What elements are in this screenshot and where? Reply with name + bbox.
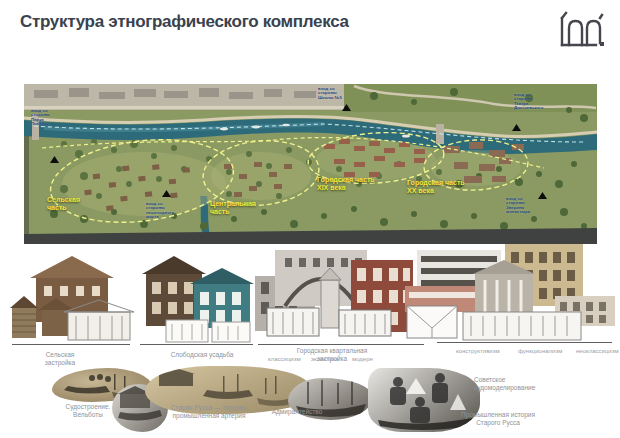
caption-admiralty: Адмиралтейство xyxy=(262,408,332,416)
zone-label-xx: Городская часть XX века xyxy=(407,179,469,196)
style-label-constructivism: конструктивизм xyxy=(456,348,500,354)
caption-ship-modelling: Советское судомоделирование xyxy=(474,376,548,392)
slide: Структура этнографического комплекса xyxy=(0,0,620,438)
ground-line xyxy=(140,344,253,345)
ground-line xyxy=(12,344,130,345)
urban-quarter-collage xyxy=(255,246,425,344)
zone-label-rural: Сельская часть xyxy=(47,196,93,213)
entrance-label-bridge: вход со стороны пешеходного моста xyxy=(146,201,172,220)
sloboda-estate-collage xyxy=(138,252,255,344)
ground-line xyxy=(437,342,612,343)
caption-industrial-history: Промышленная история Старого Русса xyxy=(458,411,538,427)
caption-sloboda-estate: Слободская усадьба xyxy=(170,351,234,359)
masterplan-aerial-view xyxy=(24,84,597,244)
zone-label-xix: Городская часть XIX века xyxy=(317,176,379,193)
masterplan-illustration xyxy=(24,84,597,244)
entrance-label-theatre: вход со стороны Театра Достоевского xyxy=(514,92,540,111)
zone-label-central: Центральная часть xyxy=(210,200,272,217)
style-label-eclecticism: эклектика xyxy=(311,356,338,362)
caption-shipbuilding: Судостроение. Вельботы xyxy=(50,403,126,419)
caption-trade-artery: Старая Русса — торгово-промышленная арте… xyxy=(163,404,255,420)
style-label-neoclassicism: неоклассицизм xyxy=(576,348,619,354)
soviet-era-collage xyxy=(405,240,615,344)
entrance-label-school: вход со стороны Школы №5 xyxy=(318,86,344,100)
studio-logo-icon xyxy=(556,8,606,52)
style-label-modern: модерн xyxy=(352,356,373,362)
rural-buildings-collage xyxy=(10,250,136,344)
entrance-label-monastery: вход со стороны Зверина монастыря xyxy=(506,196,532,215)
entrance-label-park: вход со стороны Парка Победы xyxy=(31,108,57,127)
page-title: Структура этнографического комплекса xyxy=(20,12,349,32)
style-label-classicism: классицизм xyxy=(268,356,301,362)
caption-rural-buildings: Сельская застройка xyxy=(30,351,90,367)
style-label-functionalism: функционализм xyxy=(518,348,562,354)
ground-line xyxy=(258,344,424,345)
